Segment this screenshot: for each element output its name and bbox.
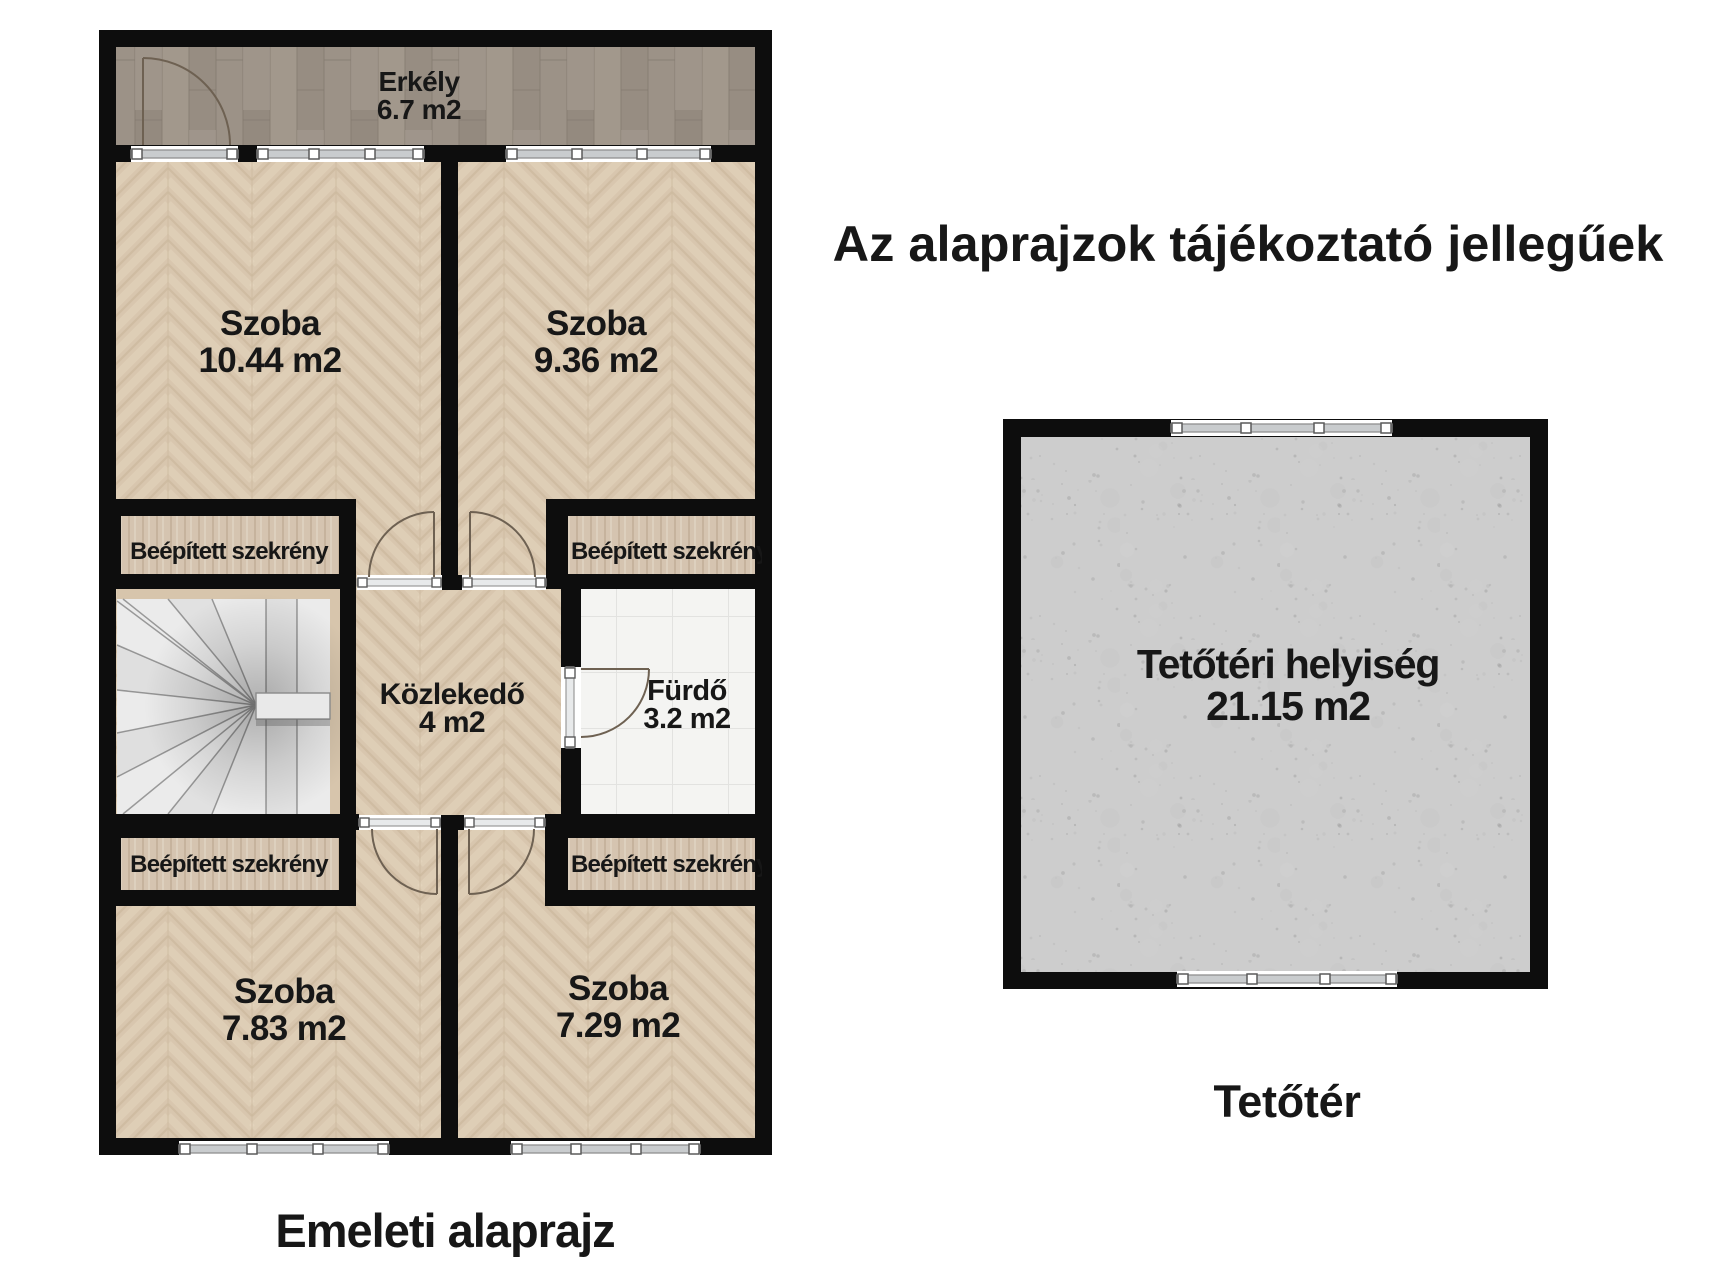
svg-text:10.44 m2: 10.44 m2 xyxy=(198,341,341,380)
svg-text:4 m2: 4 m2 xyxy=(419,706,485,739)
svg-text:21.15 m2: 21.15 m2 xyxy=(1206,683,1370,729)
svg-text:Emeleti alaprajz: Emeleti alaprajz xyxy=(275,1204,614,1257)
svg-text:Tetőtér: Tetőtér xyxy=(1213,1076,1360,1127)
svg-text:9.36 m2: 9.36 m2 xyxy=(534,341,658,380)
svg-text:3.2 m2: 3.2 m2 xyxy=(643,703,730,735)
svg-text:7.29 m2: 7.29 m2 xyxy=(556,1006,680,1045)
svg-text:Szoba: Szoba xyxy=(220,304,321,343)
svg-text:Beépített szekrény: Beépített szekrény xyxy=(130,538,329,565)
svg-text:6.7 m2: 6.7 m2 xyxy=(377,94,461,125)
svg-text:Szoba: Szoba xyxy=(546,304,647,343)
svg-text:Beépített szekrény: Beépített szekrény xyxy=(571,851,770,878)
svg-text:Erkély: Erkély xyxy=(378,66,460,97)
svg-text:Szoba: Szoba xyxy=(234,972,335,1011)
svg-text:Beépített szekrény: Beépített szekrény xyxy=(571,538,770,565)
svg-text:Tetőtéri helyiség: Tetőtéri helyiség xyxy=(1137,641,1439,687)
svg-text:Az alaprajzok tájékoztató jell: Az alaprajzok tájékoztató jellegűek xyxy=(833,215,1665,272)
svg-text:Szoba: Szoba xyxy=(568,969,669,1008)
svg-text:Beépített szekrény: Beépített szekrény xyxy=(130,851,329,878)
svg-text:7.83 m2: 7.83 m2 xyxy=(222,1009,346,1048)
